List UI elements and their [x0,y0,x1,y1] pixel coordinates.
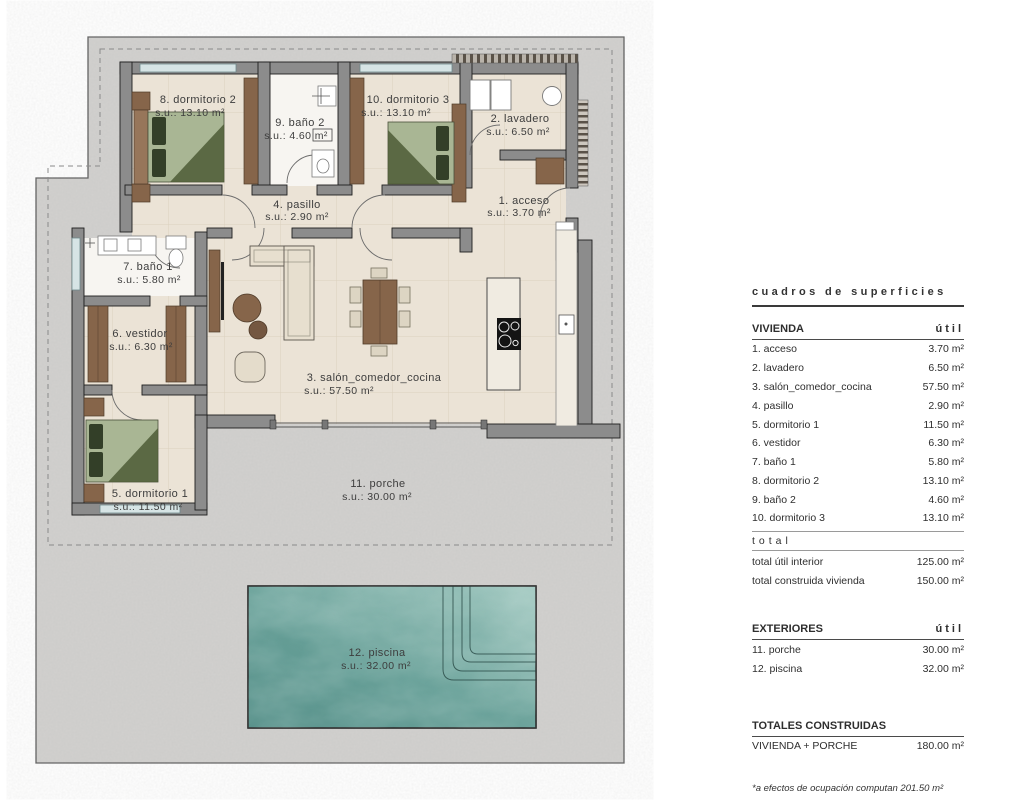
svg-text:s.u.: 2.90 m²: s.u.: 2.90 m² [265,211,329,223]
table-row: 11. porche30.00 m² [752,640,964,659]
table-row: 7. baño 15.80 m² [752,453,964,472]
svg-text:s.u.: 32.00 m²: s.u.: 32.00 m² [341,660,411,672]
svg-text:1. acceso: 1. acceso [499,195,550,207]
svg-text:7. baño 1: 7. baño 1 [123,261,172,273]
room-label-bano1: 7. baño 1 s.u.: 5.80 m² [117,261,181,286]
section-exteriores: EXTERIORES útil 11. porche30.00 m² 12. p… [752,621,964,678]
svg-text:s.u.: 13.10 m²: s.u.: 13.10 m² [361,107,431,119]
wardrobe-bedroom3 [350,78,364,184]
table-row: 6. vestidor6.30 m² [752,434,964,453]
section-totales-construidas: TOTALES CONSTRUIDAS VIVIENDA + PORCHE180… [752,718,964,756]
coffee-table-icon [233,294,261,322]
table-row: 4. pasillo2.90 m² [752,396,964,415]
table-row: 9. baño 24.60 m² [752,490,964,509]
section-vivienda: VIVIENDA útil 1. acceso3.70 m² 2. lavade… [752,321,964,590]
room-label-vestidor: 6. vestidor s.u.: 6.30 m² [109,328,173,353]
room-label-dormitorio2: 8. dormitorio 2 s.u.: 13.10 m² [155,94,236,119]
vivienda-header: VIVIENDA [752,323,804,335]
tv-unit [209,250,220,332]
svg-text:s.u.: 5.80 m²: s.u.: 5.80 m² [117,274,181,286]
kitchen-counter [556,230,577,426]
svg-text:s.u.: 6.30 m²: s.u.: 6.30 m² [109,341,173,353]
total-row: total útil interior125.00 m² [752,553,964,572]
window-bedroom3 [360,64,452,72]
hatch-band-top [452,54,578,63]
window-bathroom1 [72,238,80,290]
room-label-pasillo: 4. pasillo s.u.: 2.90 m² [265,199,329,223]
svg-text:s.u.: 6.50 m²: s.u.: 6.50 m² [486,126,550,138]
table-row: VIVIENDA + PORCHE180.00 m² [752,737,964,756]
occupation-footnote: *a efectos de ocupación computan 201.50 … [752,783,964,794]
kitchen-island [487,278,521,390]
table-row: 10. dormitorio 313.10 m² [752,509,964,528]
room-label-lavadero: 2. lavadero s.u.: 6.50 m² [486,113,550,138]
total-divider-label: total [752,531,964,551]
page: 8. dormitorio 2 s.u.: 13.10 m² 9. baño 2… [0,0,1024,800]
svg-text:5. dormitorio 1: 5. dormitorio 1 [112,488,188,500]
toilet-icon [166,236,186,249]
room-label-piscina: 12. piscina s.u.: 32.00 m² [341,647,411,672]
svg-text:2. lavadero: 2. lavadero [491,113,550,125]
exteriores-header: EXTERIORES [752,623,823,635]
side-table-icon [249,321,267,339]
svg-text:8. dormitorio 2: 8. dormitorio 2 [160,94,236,106]
table-row: 2. lavadero6.50 m² [752,359,964,378]
pouf-icon [235,352,265,382]
util-column-header: útil [936,623,965,635]
svg-text:6. vestidor: 6. vestidor [112,328,167,340]
svg-text:s.u.: 11.50 m²: s.u.: 11.50 m² [113,501,182,513]
svg-text:3. salón_comedor_cocina: 3. salón_comedor_cocina [307,372,442,384]
wardrobe-bedroom2 [244,78,258,184]
total-row: total construida vivienda150.00 m² [752,572,964,591]
washer-icon [470,80,490,110]
surface-table-panel: cuadros de superficies VIVIENDA útil 1. … [752,286,964,794]
dryer-icon [491,80,511,110]
table-row: 3. salón_comedor_cocina57.50 m² [752,378,964,397]
svg-text:s.u.: 57.50 m²: s.u.: 57.50 m² [304,385,374,397]
table-row: 8. dormitorio 213.10 m² [752,471,964,490]
svg-text:12. piscina: 12. piscina [349,647,406,659]
util-column-header: útil [936,323,965,335]
room-label-dormitorio1: 5. dormitorio 1 s.u.: 11.50 m² [112,488,188,513]
table-row: 5. dormitorio 111.50 m² [752,415,964,434]
svg-text:11. porche: 11. porche [350,478,405,490]
svg-text:s.u.: 30.00 m²: s.u.: 30.00 m² [342,491,412,503]
svg-text:9. baño 2: 9. baño 2 [275,117,324,129]
svg-text:10. dormitorio 3: 10. dormitorio 3 [367,94,450,106]
room-label-porche: 11. porche s.u.: 30.00 m² [342,478,412,503]
svg-text:s.u.: 13.10 m²: s.u.: 13.10 m² [155,107,225,119]
basin-icon [543,87,562,106]
svg-text:s.u.: 4.60 m²: s.u.: 4.60 m² [264,130,328,142]
table-title: cuadros de superficies [752,286,964,307]
svg-text:4. pasillo: 4. pasillo [273,199,320,211]
table-row: 1. acceso3.70 m² [752,340,964,359]
totales-header: TOTALES CONSTRUIDAS [752,720,886,732]
hatch-band-right [578,100,588,186]
room-label-bano2: 9. baño 2 s.u.: 4.60 m² [264,117,332,142]
svg-text:s.u.: 3.70 m²: s.u.: 3.70 m² [487,207,551,219]
tv-screen [221,262,224,320]
window-bedroom2 [140,64,236,72]
entry-closet [536,158,564,184]
table-row: 12. piscina32.00 m² [752,659,964,678]
